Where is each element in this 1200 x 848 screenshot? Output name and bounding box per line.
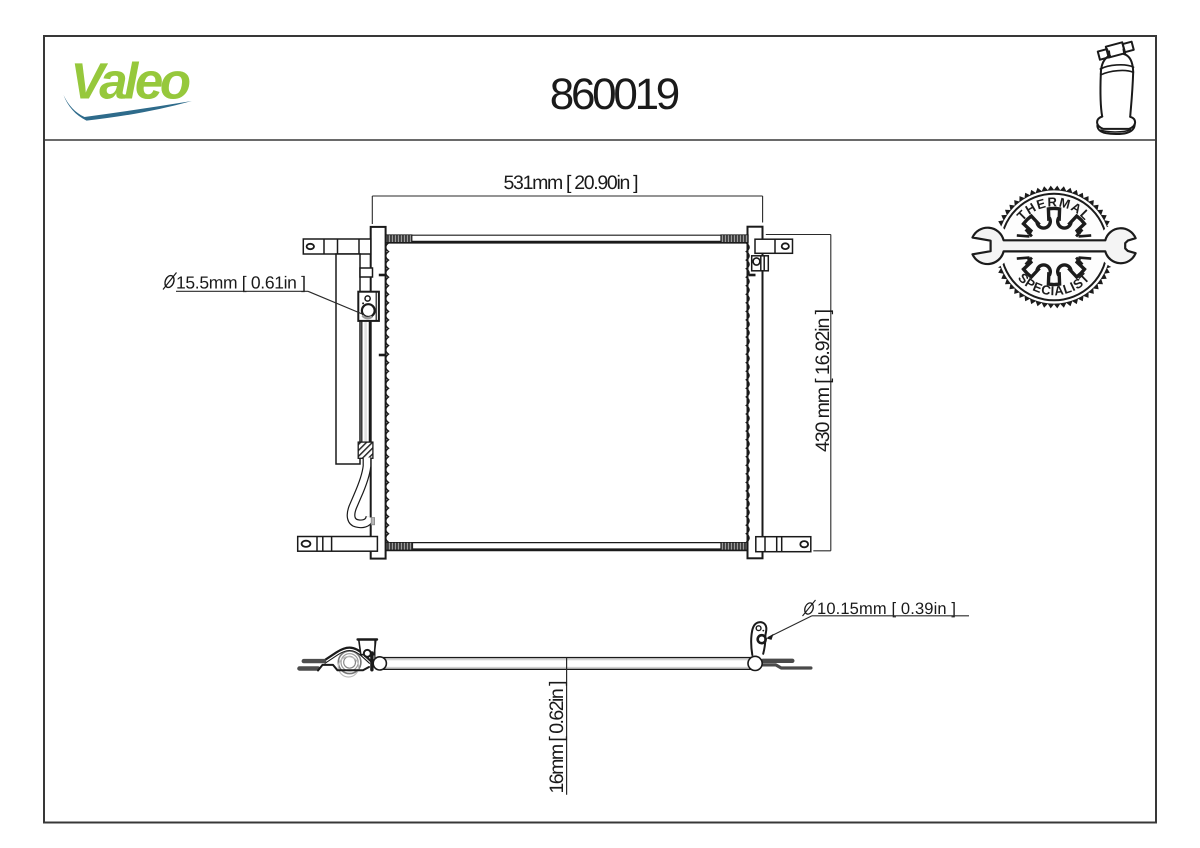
svg-text:430 mm [ 16.92in ]: 430 mm [ 16.92in ] xyxy=(812,309,834,452)
svg-text:860019: 860019 xyxy=(550,70,681,119)
svg-text:15.5mm [ 0.61in ]: 15.5mm [ 0.61in ] xyxy=(176,273,306,293)
svg-text:16mm [ 0.62in ]: 16mm [ 0.62in ] xyxy=(546,681,568,794)
svg-text:531mm [ 20.90in ]: 531mm [ 20.90in ] xyxy=(504,172,639,194)
svg-text:Valeo: Valeo xyxy=(71,53,192,110)
